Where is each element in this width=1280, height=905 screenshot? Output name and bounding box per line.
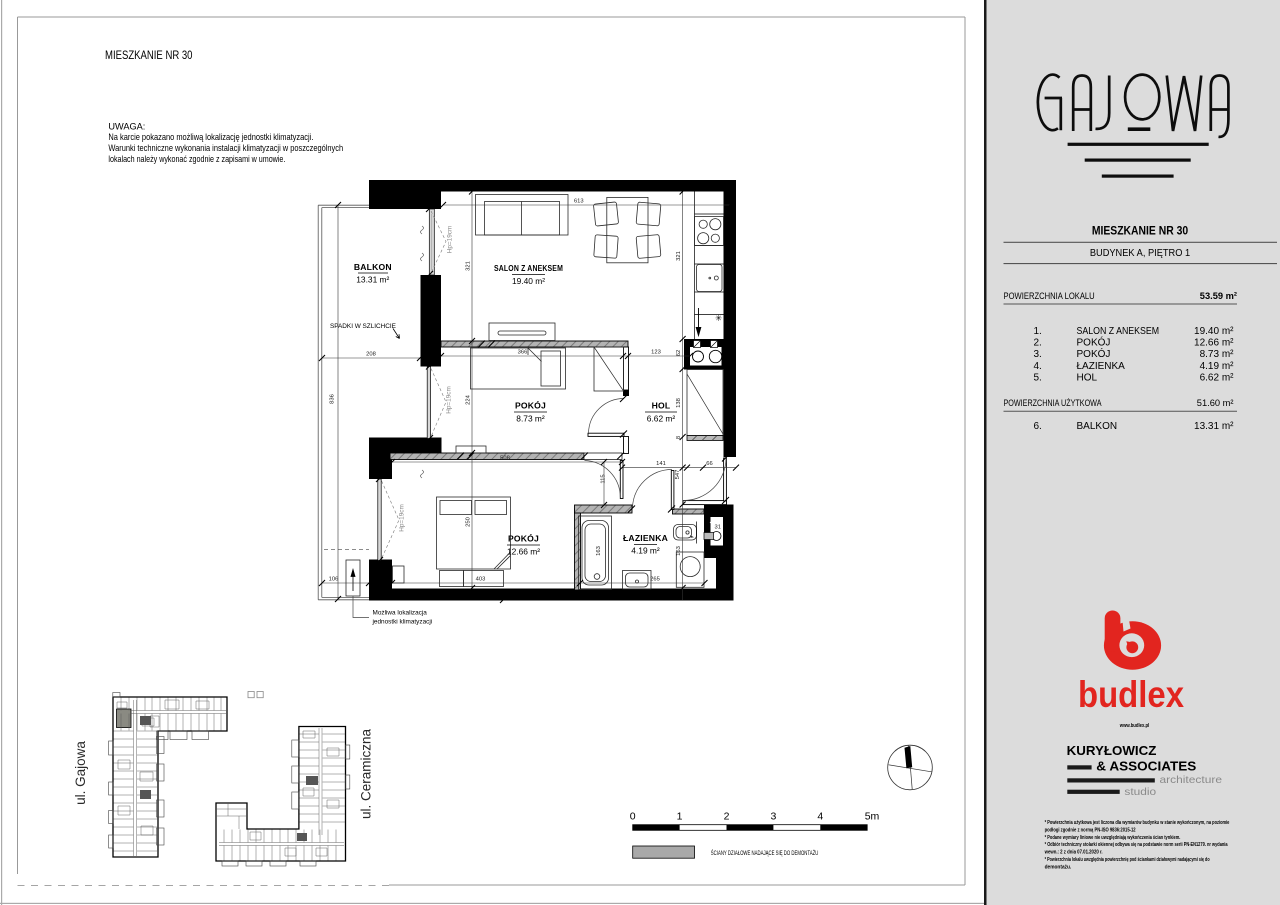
svg-text:SPADKI W SZLICHCIE: SPADKI W SZLICHCIE bbox=[330, 323, 396, 330]
svg-text:508: 508 bbox=[500, 456, 510, 462]
svg-text:66: 66 bbox=[706, 461, 712, 467]
svg-text:* Powierzchnia użytkowa jest l: * Powierzchnia użytkowa jest liczona dla… bbox=[1045, 820, 1230, 826]
svg-text:✳: ✳ bbox=[715, 313, 723, 323]
svg-text:6.: 6. bbox=[1034, 421, 1042, 432]
svg-text:2: 2 bbox=[724, 811, 730, 823]
svg-text:19.40 m²: 19.40 m² bbox=[512, 276, 545, 286]
svg-text:13.31 m²: 13.31 m² bbox=[356, 275, 389, 285]
svg-text:BUDYNEK A, PIĘTRO 1: BUDYNEK A, PIĘTRO 1 bbox=[1090, 248, 1191, 259]
svg-text:8.73 m²: 8.73 m² bbox=[1200, 349, 1235, 360]
svg-text:163: 163 bbox=[596, 546, 602, 556]
svg-text:163: 163 bbox=[676, 546, 682, 556]
svg-text:wewn.: 2 z dnia 07.01.2020 r.: wewn.: 2 z dnia 07.01.2020 r. bbox=[1044, 850, 1103, 856]
svg-text:Na karcie pokazano możliwą lok: Na karcie pokazano możliwą lokalizację j… bbox=[108, 132, 313, 142]
svg-text:12.66 m²: 12.66 m² bbox=[1194, 338, 1234, 349]
svg-text:106: 106 bbox=[329, 577, 339, 583]
svg-text:MIESZKANIE NR 30: MIESZKANIE NR 30 bbox=[1092, 226, 1188, 238]
svg-text:224: 224 bbox=[466, 394, 472, 404]
svg-text:4: 4 bbox=[817, 811, 823, 823]
svg-text:265: 265 bbox=[650, 577, 660, 583]
svg-text:138: 138 bbox=[676, 398, 682, 408]
svg-text:8.73 m²: 8.73 m² bbox=[516, 414, 545, 424]
svg-text:ŚCIANY DZIAŁOWE NADAJĄCE SIĘ D: ŚCIANY DZIAŁOWE NADAJĄCE SIĘ DO DEMONTAŻ… bbox=[711, 849, 819, 857]
svg-text:KURYŁOWICZ: KURYŁOWICZ bbox=[1067, 743, 1157, 758]
svg-text:budlex: budlex bbox=[1078, 674, 1184, 715]
svg-text:19.40 m²: 19.40 m² bbox=[1194, 326, 1234, 337]
svg-text:1: 1 bbox=[677, 811, 683, 823]
svg-text:6.62 m²: 6.62 m² bbox=[1200, 373, 1235, 384]
svg-text:62: 62 bbox=[676, 350, 682, 356]
svg-text:321: 321 bbox=[676, 251, 682, 261]
svg-text:8: 8 bbox=[676, 436, 682, 439]
svg-text:547: 547 bbox=[675, 470, 681, 480]
svg-text:architecture: architecture bbox=[1160, 774, 1223, 786]
svg-text:141: 141 bbox=[656, 461, 666, 467]
svg-text:115: 115 bbox=[601, 474, 607, 483]
svg-text:123: 123 bbox=[651, 350, 661, 356]
svg-text:HOL: HOL bbox=[1077, 373, 1098, 384]
svg-text:POKÓJ: POKÓJ bbox=[515, 400, 546, 411]
svg-text:podłogi zgodnie z normą PN-ISO: podłogi zgodnie z normą PN-ISO 9836:2015… bbox=[1045, 827, 1136, 833]
svg-text:613: 613 bbox=[574, 199, 584, 205]
svg-text:12.66 m²: 12.66 m² bbox=[507, 547, 540, 557]
svg-text:0: 0 bbox=[630, 811, 636, 823]
svg-text:ul. Ceramiczna: ul. Ceramiczna bbox=[359, 728, 374, 819]
svg-text:4.: 4. bbox=[1034, 361, 1042, 372]
svg-text:Hp=19cm: Hp=19cm bbox=[447, 226, 454, 254]
svg-text:321: 321 bbox=[466, 261, 472, 271]
svg-text:POWIERZCHNIA LOKALU: POWIERZCHNIA LOKALU bbox=[1004, 291, 1095, 301]
svg-text:& ASSOCIATES: & ASSOCIATES bbox=[1096, 759, 1196, 774]
svg-text:BALKON: BALKON bbox=[354, 262, 392, 272]
svg-text:SALON Z ANEKSEM: SALON Z ANEKSEM bbox=[1077, 326, 1160, 337]
svg-text:5.: 5. bbox=[1034, 373, 1042, 384]
svg-text:403: 403 bbox=[476, 577, 486, 583]
svg-text:studio: studio bbox=[1124, 786, 1156, 798]
svg-text:POKÓJ: POKÓJ bbox=[1077, 347, 1111, 360]
svg-text:366: 366 bbox=[518, 350, 528, 356]
svg-text:3.: 3. bbox=[1034, 349, 1042, 360]
svg-text:2.: 2. bbox=[1034, 338, 1042, 349]
svg-text:836: 836 bbox=[330, 394, 336, 404]
svg-text:www.budlex.pl: www.budlex.pl bbox=[1119, 723, 1150, 729]
svg-text:UWAGA:: UWAGA: bbox=[108, 122, 145, 132]
svg-text:13.31 m²: 13.31 m² bbox=[1194, 421, 1234, 432]
svg-text:HOL: HOL bbox=[652, 401, 671, 411]
svg-text:POWIERZCHNIA UŻYTKOWA: POWIERZCHNIA UŻYTKOWA bbox=[1004, 398, 1103, 408]
svg-text:POKÓJ: POKÓJ bbox=[1077, 336, 1111, 349]
svg-text:Hp=19cm: Hp=19cm bbox=[399, 504, 406, 532]
svg-text:ul. Gajowa: ul. Gajowa bbox=[73, 741, 88, 805]
svg-text:POKÓJ: POKÓJ bbox=[508, 533, 539, 544]
svg-text:SALON Z ANEKSEM: SALON Z ANEKSEM bbox=[494, 263, 563, 273]
svg-text:BALKON: BALKON bbox=[1077, 421, 1118, 432]
svg-text:lokalach należy wykonać zgodni: lokalach należy wykonać zgodnie z zapisa… bbox=[108, 154, 285, 164]
svg-text:31: 31 bbox=[715, 525, 721, 531]
svg-text:ŁAZIENKA: ŁAZIENKA bbox=[1077, 361, 1126, 372]
svg-text:51.60 m²: 51.60 m² bbox=[1197, 398, 1234, 408]
svg-text:208: 208 bbox=[366, 352, 376, 358]
svg-text:1.: 1. bbox=[1034, 326, 1042, 337]
svg-text:* Powierzchnia lokalu uwzględn: * Powierzchnia lokalu uwzględnia powierz… bbox=[1045, 857, 1210, 863]
svg-text:MIESZKANIE NR 30: MIESZKANIE NR 30 bbox=[105, 49, 193, 62]
svg-text:* Podane wymiary liniowe nie u: * Podane wymiary liniowe nie uwzględniaj… bbox=[1045, 835, 1181, 841]
svg-text:6.62 m²: 6.62 m² bbox=[647, 414, 676, 424]
svg-text:ŁAZIENKA: ŁAZIENKA bbox=[623, 533, 668, 543]
svg-text:* Odbiór techniczny stolarki o: * Odbiór techniczny stolarki okiennej od… bbox=[1045, 842, 1229, 848]
svg-text:Warunki techniczne wykonania i: Warunki techniczne wykonania instalacji … bbox=[108, 143, 343, 153]
svg-text:53.59 m²: 53.59 m² bbox=[1200, 291, 1237, 301]
svg-text:4.19 m²: 4.19 m² bbox=[631, 546, 660, 556]
svg-text:Możliwa lokalizacja: Możliwa lokalizacja bbox=[373, 610, 428, 617]
svg-text:4.19 m²: 4.19 m² bbox=[1200, 361, 1235, 372]
svg-text:3: 3 bbox=[770, 811, 776, 823]
svg-text:250: 250 bbox=[466, 517, 472, 527]
svg-text:Hp=19cm: Hp=19cm bbox=[446, 386, 453, 414]
svg-text:demontażu.: demontażu. bbox=[1045, 864, 1072, 870]
svg-text:jednostki klimatyzacji: jednostki klimatyzacji bbox=[372, 619, 433, 626]
svg-text:5m: 5m bbox=[865, 811, 880, 823]
